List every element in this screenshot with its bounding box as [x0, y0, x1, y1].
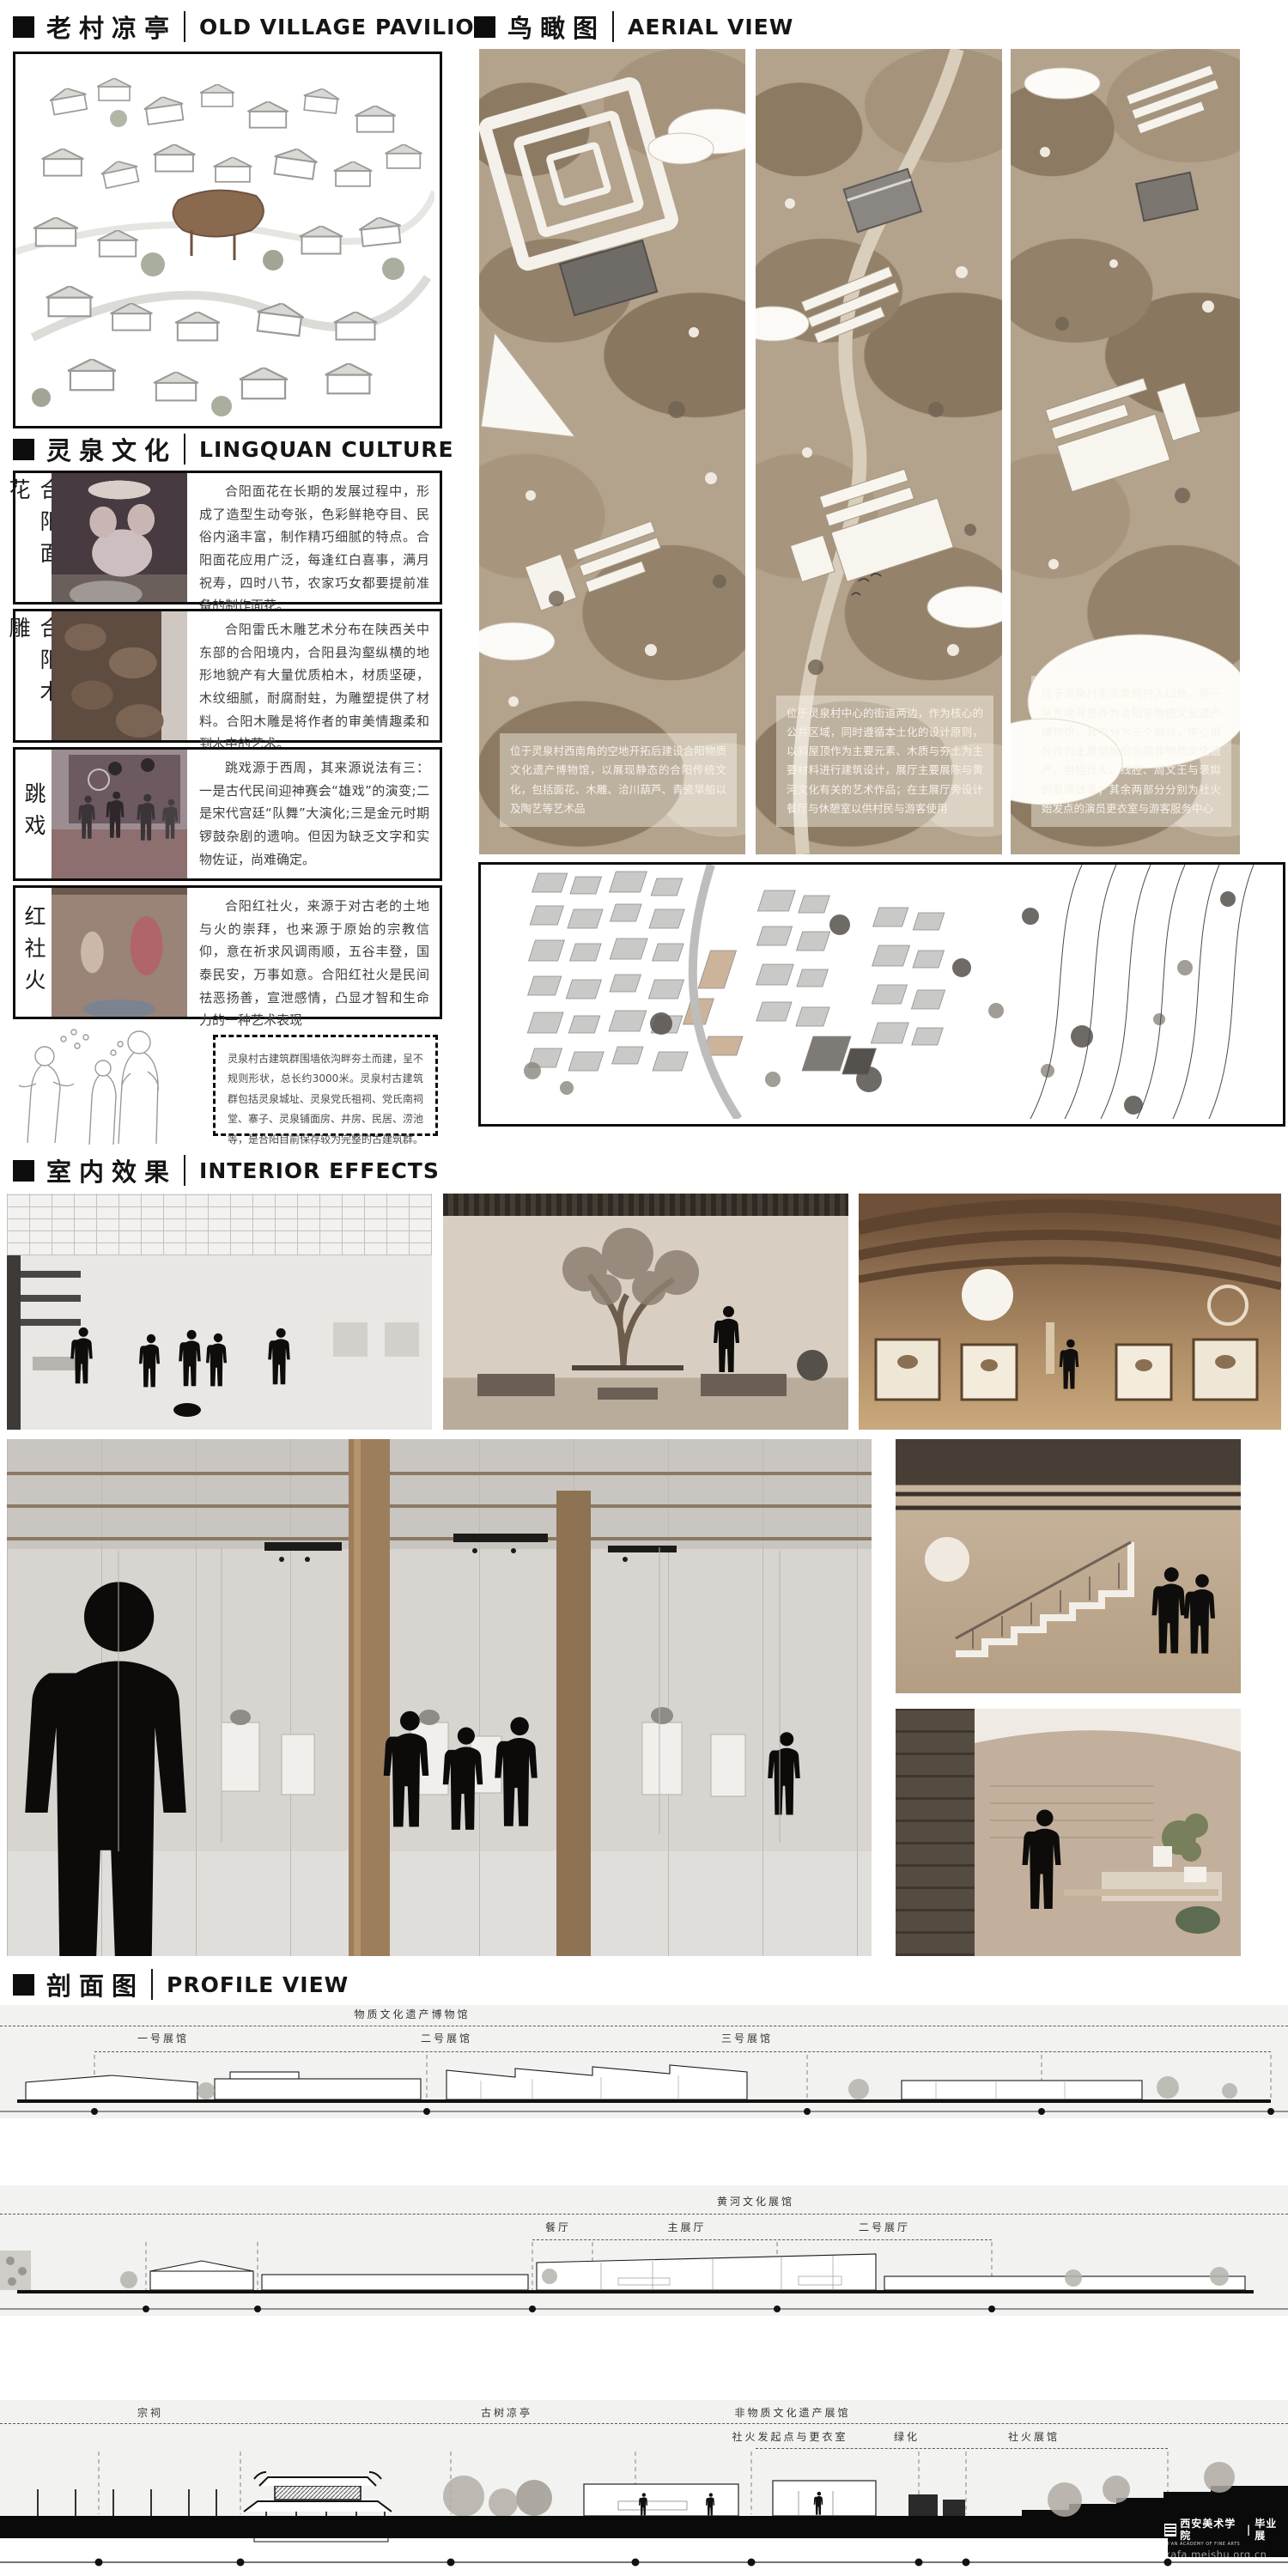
interior-render-bonsai-lounge — [443, 1194, 848, 1430]
dim-line — [532, 2239, 992, 2240]
header-zh: 灵泉文化 — [46, 431, 177, 467]
aerial-caption: 位于灵泉村东南角的村入口处，将一块荒地开垦作为合阳非物质文化遗产博物馆，其中分为… — [1031, 676, 1231, 827]
dim-line — [0, 2423, 1288, 2424]
tiaoxi-photo — [52, 750, 187, 878]
header-profile-view: 剖面图 PROFILE VIEW — [13, 1966, 349, 2002]
room-label: 宗祠 — [137, 2405, 163, 2420]
header-divider — [184, 434, 185, 465]
header-divider — [151, 1969, 153, 2000]
room-label: 主展厅 — [667, 2220, 706, 2234]
interior-overlay — [7, 1194, 432, 1430]
room-label: 绿化 — [894, 2429, 920, 2444]
pavilion-canopy — [173, 191, 264, 260]
aerial-panel-yellow-river: 位于灵泉村中心的街道两边，作为核心的公共区域，同时遵循本土化的设计原则，以斜屋顶… — [756, 49, 1002, 854]
shehuo-photo — [52, 888, 187, 1017]
person-silhouette — [1060, 1340, 1079, 1389]
section-strip-heritage-museum: 物质文化遗产博物馆 一号展馆 二号展馆 三号展馆 — [0, 2005, 1288, 2118]
sketch-figures — [10, 1024, 212, 1148]
watermark-sub: XI'AN ACADEMY OF FINE ARTS — [1164, 2543, 1286, 2548]
room-label: 社火发起点与更衣室 — [732, 2429, 848, 2444]
staircase — [956, 1542, 1131, 1654]
person-silhouette — [1152, 1567, 1216, 1653]
watermark-divider: | — [1247, 2524, 1251, 2537]
village-axon-illustration — [15, 54, 434, 421]
round-window — [925, 1537, 969, 1582]
section-marker-icon — [13, 439, 34, 460]
culture-text: 跳戏源于西周，其来源说法有三：一是古代民间迎神赛会“雄戏”的演变;二是宋代宫廷“… — [187, 750, 440, 878]
header-zh: 剖面图 — [46, 1966, 144, 2002]
room-label: 三号展馆 — [721, 2031, 773, 2045]
header-lingquan-culture: 灵泉文化 LINGQUAN CULTURE — [13, 431, 454, 467]
header-interior-effects: 室内效果 INTERIOR EFFECTS — [13, 1152, 440, 1188]
culture-label: 红社火 — [15, 888, 52, 1017]
section-group-label: 非物质文化遗产展馆 — [734, 2405, 850, 2420]
watermark: 西安美术学院 | 毕业展 XI'AN ACADEMY OF FINE ARTS … — [1164, 2518, 1286, 2561]
culture-text: 合阳雷氏木雕艺术分布在陕西关中东部的合阳境内，合阳县沟壑纵横的地形地貌产有大量优… — [187, 611, 440, 740]
pavilion-axon-drawing — [13, 52, 442, 428]
tree-mural — [562, 1228, 699, 1365]
culture-row-mianhua: 合阳面花 合阳面花在长期的发展过程中，形成了造型生动夸张，色彩鲜艳夺目、民俗内涵… — [13, 471, 442, 605]
watermark-school: 西安美术学院 — [1180, 2518, 1243, 2543]
moon-window — [962, 1269, 1013, 1321]
culture-row-shehuo: 红社火 合阳红社火，来源于对古老的土地与火的崇拜，也来源于原始的宗教信仰，意在祈… — [13, 885, 442, 1019]
watermark-show: 毕业展 — [1255, 2518, 1286, 2543]
heritage-note: 灵泉村古建筑群围墙依沟畔夯土而建，呈不规则形状，总长约3000米。灵泉村古建筑群… — [213, 1035, 438, 1136]
header-divider — [612, 11, 614, 42]
section-marker-icon — [13, 1974, 34, 1996]
watermark-url: xafa.meishu.org.cn — [1164, 2549, 1286, 2561]
room-label: 一号展馆 — [137, 2031, 189, 2045]
interior-render-lobby — [896, 1709, 1241, 1956]
section-group-label: 黄河文化展馆 — [717, 2194, 794, 2208]
culture-text: 合阳面花在长期的发展过程中，形成了造型生动夸张，色彩鲜艳夺目、民俗内涵丰富，制作… — [187, 473, 440, 602]
section-strip-intangible-heritage: 宗祠 古树凉亭 非物质文化遗产展馆 社火发起点与更衣室 绿化 社火展馆 — [0, 2400, 1288, 2576]
culture-row-tiaoxi: 跳戏 跳戏源于西周，其来源说法有三：一是古代民间迎神赛会“雄戏”的演变;二是宋代… — [13, 747, 442, 881]
person-silhouette — [714, 1306, 739, 1372]
header-divider — [184, 1155, 185, 1186]
river-contours — [1030, 865, 1254, 1119]
interior-render-gallery-hall — [7, 1194, 432, 1430]
header-en: OLD VILLAGE PAVILION — [199, 15, 494, 39]
aerial-panel-heritage-museum: 位于灵泉村西南角的空地开拓后建设合阳物质文化遗产博物馆，以展现静态的合阳传统文化… — [479, 49, 745, 854]
mianhua-photo — [52, 473, 187, 602]
room-label: 餐厅 — [545, 2220, 571, 2234]
section-marker-icon — [13, 1160, 34, 1182]
header-divider — [184, 11, 185, 42]
section-drawing — [0, 2451, 1288, 2576]
culture-row-mudiao: 合阳木雕 合阳雷氏木雕艺术分布在陕西关中东部的合阳境内，合阳县沟壑纵横的地形地貌… — [13, 609, 442, 743]
header-aerial-view: 鸟瞰图 AERIAL VIEW — [474, 9, 793, 45]
header-zh: 鸟瞰图 — [507, 9, 605, 45]
dim-line — [756, 2448, 1168, 2449]
display-pedestals — [222, 1722, 745, 1796]
interior-render-stair-hall — [896, 1439, 1241, 1693]
section-drawing — [0, 2242, 1288, 2316]
header-en: INTERIOR EFFECTS — [199, 1158, 440, 1183]
site-plan-graphics — [481, 865, 1278, 1119]
room-label: 社火展馆 — [1008, 2429, 1060, 2444]
interior-render-display-room — [859, 1194, 1281, 1430]
dim-line — [94, 2051, 1271, 2052]
section-marker-icon — [474, 16, 495, 38]
dim-line — [0, 2026, 1288, 2026]
header-en: LINGQUAN CULTURE — [199, 437, 454, 462]
interior-overlay — [896, 1709, 1241, 1956]
header-en: PROFILE VIEW — [167, 1972, 349, 1997]
header-zh: 室内效果 — [46, 1152, 177, 1188]
village-houses — [33, 78, 422, 400]
section-drawing — [0, 2055, 1288, 2117]
room-label: 二号展厅 — [859, 2220, 910, 2234]
timber-column — [556, 1491, 591, 1956]
round-pot — [1176, 1906, 1220, 1934]
aerial-caption: 位于灵泉村西南角的空地开拓后建设合阳物质文化遗产博物馆，以展现静态的合阳传统文化… — [500, 733, 737, 827]
aerial-view: 位于灵泉村西南角的空地开拓后建设合阳物质文化遗产博物馆，以展现静态的合阳传统文化… — [479, 49, 1240, 854]
tiaoxi-figures — [52, 750, 187, 873]
site-plan-drawing — [478, 862, 1285, 1127]
section-strip-yellow-river: 黄河文化展馆 餐厅 主展厅 二号展厅 — [0, 2185, 1288, 2316]
section-marker-icon — [13, 16, 34, 38]
culture-label: 合阳面花 — [15, 473, 52, 602]
round-window — [1209, 1286, 1247, 1324]
header-old-village-pavilion: 老村凉亭 OLD VILLAGE PAVILION — [13, 9, 494, 45]
person-silhouette — [1023, 1810, 1061, 1910]
interior-overlay — [859, 1194, 1281, 1430]
room-label: 二号展馆 — [421, 2031, 472, 2045]
interior-overlay — [896, 1439, 1241, 1693]
culture-label: 合阳木雕 — [15, 611, 52, 740]
presentation-board: { "headers": { "pavilion": {"zh": "老村凉亭"… — [0, 0, 1288, 2576]
header-zh: 老村凉亭 — [46, 9, 177, 45]
interior-overlay — [443, 1194, 848, 1430]
interior-overlay — [7, 1439, 872, 1956]
interior-render-main-exhibition-hall — [7, 1439, 872, 1956]
academy-logo-icon — [1164, 2524, 1176, 2537]
room-label: 古树凉亭 — [481, 2405, 532, 2420]
person-silhouette — [25, 1582, 800, 1956]
aerial-panel-intangible-heritage: 位于灵泉村东南角的村入口处，将一块荒地开垦作为合阳非物质文化遗产博物馆，其中分为… — [1011, 49, 1240, 854]
mudiao-photo — [52, 611, 187, 740]
cloud-icon — [756, 307, 1002, 628]
header-en: AERIAL VIEW — [628, 15, 793, 39]
culture-label: 跳戏 — [15, 750, 52, 878]
dim-line — [0, 2214, 1288, 2215]
aerial-caption: 位于灵泉村中心的街道两边，作为核心的公共区域，同时遵循本土化的设计原则，以斜屋顶… — [776, 696, 993, 828]
section-group-label: 物质文化遗产博物馆 — [354, 2007, 470, 2021]
person-silhouette — [70, 1327, 290, 1417]
culture-text: 合阳红社火，来源于对古老的土地与火的崇拜，也来源于原始的宗教信仰，意在祈求风调雨… — [187, 888, 440, 1017]
